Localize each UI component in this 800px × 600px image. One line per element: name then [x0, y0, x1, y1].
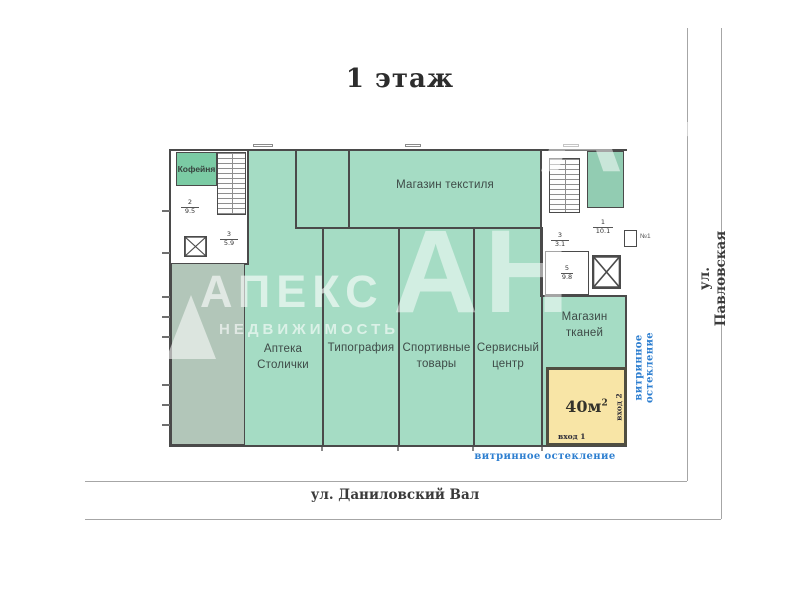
window-mark — [563, 144, 579, 147]
street-line-bottom-outer — [85, 519, 721, 520]
unit-service-center-label: Сервисный центр — [476, 341, 540, 372]
floor-plan-canvas: 1 этаж ул. Даниловский Вал ул. Павловска… — [0, 0, 800, 600]
porch-label: №1 — [640, 233, 651, 240]
unit-kofeinya-label: Кофейня — [178, 164, 216, 174]
room-label-5: 5 9.8 — [561, 265, 573, 282]
room-label-3: 3 5.9 — [220, 231, 238, 248]
glazing-label-bottom: витринное остекление — [445, 451, 645, 462]
unit-fabric-store-label: Магазин тканей — [544, 310, 625, 341]
interior-wall — [473, 227, 475, 445]
wall-tick — [162, 336, 170, 338]
unit-kofeinya: Кофейня — [176, 152, 217, 186]
street-label-pavlovskaya: ул. Павловская — [697, 220, 712, 337]
street-line-bottom-inner — [85, 481, 687, 482]
wall-tick — [162, 424, 170, 426]
wall-tick — [162, 404, 170, 406]
room-label-3b: 3 3.1 — [551, 232, 569, 249]
page-title: 1 этаж — [250, 64, 550, 94]
corridor-area — [171, 263, 245, 445]
interior-wall — [541, 227, 543, 445]
staircase-right — [549, 158, 580, 213]
window-mark — [405, 144, 421, 147]
interior-wall — [322, 227, 324, 445]
interior-wall — [295, 151, 297, 229]
wall-tick — [162, 384, 170, 386]
unit-sporting-goods-label: Спортивные товары — [401, 341, 472, 372]
unit-textile-store-label: Магазин текстиля — [352, 178, 538, 194]
street-label-danilovsky-val: ул. Даниловский Вал — [270, 487, 520, 503]
unit-vacant-40m2: 40м2 вход 2 вход 1 — [546, 367, 627, 446]
wall-tick — [162, 316, 170, 318]
back-room-area — [587, 151, 624, 208]
glazing-label-right: витринное остекление — [634, 310, 647, 426]
room-label-2: 2 9.5 — [181, 199, 199, 216]
elevator-icon — [592, 255, 621, 289]
entrance-2-label: вход 2 — [615, 393, 624, 421]
room-5: 5 9.8 — [545, 251, 589, 295]
entrance-1-label: вход 1 — [558, 432, 586, 441]
wall-tick — [321, 447, 323, 451]
interior-wall — [348, 151, 350, 229]
street-line-right-inner — [687, 28, 688, 481]
room-label-1: 1 10.1 — [593, 219, 613, 236]
wall-tick — [162, 252, 170, 254]
wall-tick — [397, 447, 399, 451]
interior-wall — [398, 227, 400, 445]
staircase-left — [217, 152, 246, 215]
window-mark — [253, 144, 273, 147]
wall-tick — [162, 210, 170, 212]
vacant-area-label: 40м2 — [565, 397, 607, 416]
elevator-icon — [184, 236, 207, 257]
unit-print-shop-label: Типография — [325, 341, 397, 357]
wall-tick — [162, 296, 170, 298]
entrance-porch — [624, 230, 637, 247]
interior-wall — [295, 227, 543, 229]
unit-pharmacy-label: Аптека Столички — [245, 342, 321, 373]
